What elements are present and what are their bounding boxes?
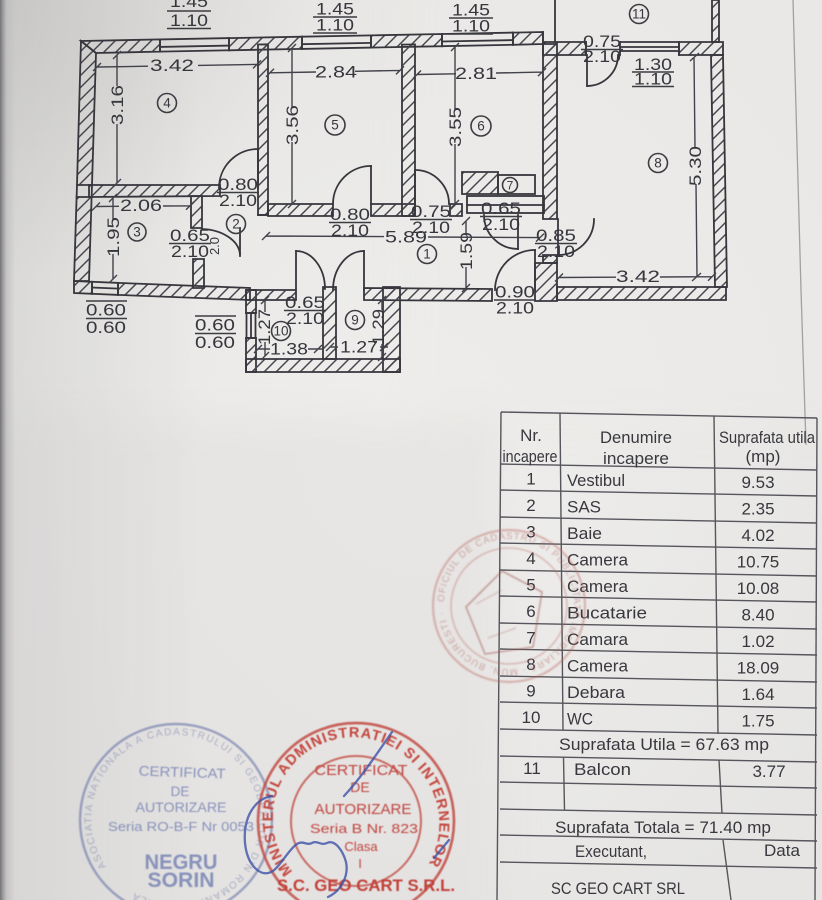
svg-text:Baie: Baie [567,524,602,543]
svg-text:1: 1 [423,247,431,262]
svg-text:6: 6 [477,119,485,134]
svg-text:2.10: 2.10 [219,192,257,210]
svg-text:3: 3 [133,225,141,240]
svg-text:Denumire: Denumire [600,428,672,447]
svg-text:8.40: 8.40 [741,606,774,625]
svg-text:2.81: 2.81 [455,65,497,83]
svg-text:6: 6 [526,602,535,621]
svg-text:2.10: 2.10 [537,243,575,261]
svg-text:3.42: 3.42 [150,57,194,75]
svg-text:5.30: 5.30 [687,146,705,186]
svg-text:Camera: Camera [567,551,629,570]
svg-text:3.42: 3.42 [616,268,660,286]
svg-text:3.55: 3.55 [447,107,465,147]
svg-text:11: 11 [523,759,541,778]
svg-text:Suprafata Utila = 67.63 mp: Suprafata Utila = 67.63 mp [559,735,769,754]
svg-text:Camera: Camera [567,657,629,676]
svg-text:10.75: 10.75 [737,553,780,572]
svg-text:Balcon: Balcon [574,760,631,779]
svg-text:11: 11 [632,7,646,22]
svg-text:4: 4 [163,96,171,111]
svg-text:10: 10 [273,324,288,339]
svg-text:1.64: 1.64 [741,685,774,704]
svg-text:Clasa: Clasa [344,839,378,854]
svg-text:3.56: 3.56 [284,105,302,145]
svg-text:incapere: incapere [503,447,558,466]
svg-text:1.95: 1.95 [105,217,123,257]
svg-text:2.10: 2.10 [496,300,534,318]
svg-text:10: 10 [522,708,541,727]
svg-text:8: 8 [654,156,662,171]
svg-text:2.10: 2.10 [331,222,369,240]
svg-text:incapere: incapere [603,449,669,468]
svg-text:1.59: 1.59 [458,232,476,270]
svg-text:1.10: 1.10 [170,12,208,30]
svg-text:2.10: 2.10 [482,216,520,234]
svg-text:1.10: 1.10 [634,71,672,89]
svg-text:DE: DE [171,784,190,799]
svg-text:1: 1 [526,470,535,489]
svg-text:S.C. GEO CART S.R.L.: S.C. GEO CART S.R.L. [277,877,455,895]
svg-text:2.10: 2.10 [286,310,324,328]
svg-text:Seria RO-B-F Nr 0053: Seria RO-B-F Nr 0053 [108,820,254,834]
svg-text:AUTORIZARE: AUTORIZARE [136,799,227,815]
svg-text:1.02: 1.02 [741,632,774,651]
svg-text:2.0: 2.0 [207,237,222,255]
svg-text:0.60: 0.60 [86,319,126,337]
svg-text:2: 2 [526,496,535,515]
svg-text:1.75: 1.75 [741,712,774,731]
svg-text:2.10: 2.10 [583,48,621,66]
svg-text:SC GEO CART SRL: SC GEO CART SRL [551,879,685,898]
svg-text:Debara: Debara [567,683,626,702]
svg-text:3.16: 3.16 [109,85,127,125]
svg-text:Vestibul: Vestibul [567,471,625,490]
svg-text:10.08: 10.08 [737,579,780,598]
svg-text:AUTORIZARE: AUTORIZARE [315,802,412,818]
svg-text:7: 7 [507,179,514,193]
svg-text:Seria B Nr. 823: Seria B Nr. 823 [310,821,418,836]
svg-text:Suprafata utila: Suprafata utila [719,428,815,447]
svg-text:SAS: SAS [567,498,601,517]
svg-text:9: 9 [526,682,535,701]
svg-text:2.35: 2.35 [741,500,774,519]
svg-text:18.09: 18.09 [737,659,780,678]
svg-text:2.10: 2.10 [412,219,450,237]
svg-text:4.02: 4.02 [741,526,774,545]
svg-text:1.27: 1.27 [256,309,274,345]
svg-text:9: 9 [351,313,359,328]
svg-text:1.45: 1.45 [170,0,208,11]
svg-text:1.29: 1.29 [370,309,388,345]
svg-text:2.84: 2.84 [315,64,357,82]
svg-text:Executant,: Executant, [575,842,647,861]
svg-text:1.38: 1.38 [270,341,308,359]
svg-text:3.77: 3.77 [752,762,785,781]
svg-text:WC: WC [567,710,593,729]
svg-text:0.60: 0.60 [86,302,126,320]
svg-text:I: I [358,856,362,871]
svg-text:CERTIFICAT: CERTIFICAT [138,762,226,781]
svg-text:2: 2 [232,217,240,232]
svg-text:Data: Data [764,841,800,860]
svg-text:2.10: 2.10 [171,243,209,261]
svg-text:Suprafata Totala = 71.40 mp: Suprafata Totala = 71.40 mp [555,818,771,837]
svg-text:1.10: 1.10 [316,17,354,35]
svg-text:0.60: 0.60 [195,334,235,352]
svg-text:(mp): (mp) [746,447,781,466]
svg-text:0.60: 0.60 [195,317,235,335]
svg-text:5: 5 [331,118,339,133]
svg-text:1.10: 1.10 [452,18,490,36]
svg-text:2.06: 2.06 [120,197,162,215]
svg-text:SORIN: SORIN [148,869,215,892]
svg-text:Nr.: Nr. [520,426,542,445]
svg-text:9.53: 9.53 [741,473,774,492]
